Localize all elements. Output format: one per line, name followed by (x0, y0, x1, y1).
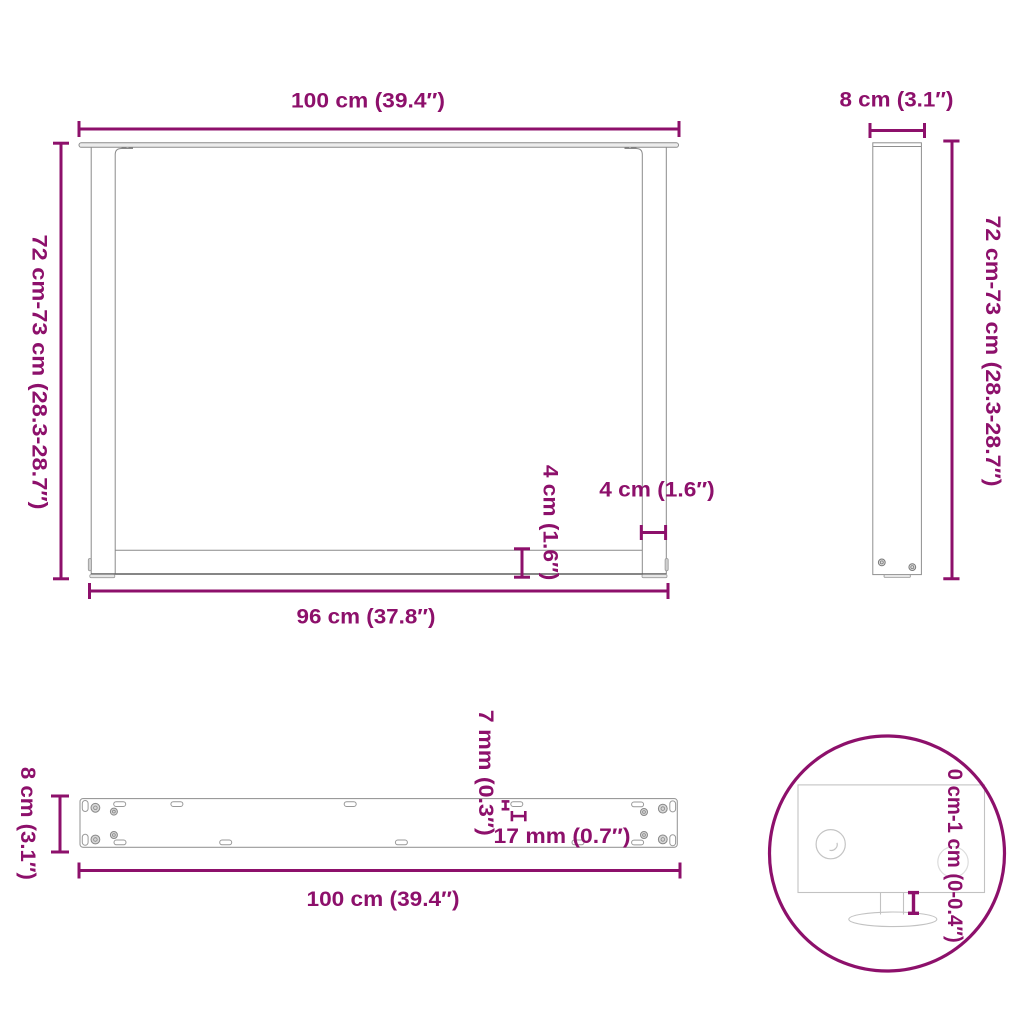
svg-text:72 cm-73 cm (28.3-28.7″): 72 cm-73 cm (28.3-28.7″) (981, 216, 1004, 487)
svg-text:96 cm (37.8″): 96 cm (37.8″) (297, 605, 436, 628)
svg-text:100 cm (39.4″): 100 cm (39.4″) (307, 888, 460, 911)
svg-text:100 cm (39.4″): 100 cm (39.4″) (291, 90, 445, 113)
svg-text:0 cm-1 cm (0-0.4″): 0 cm-1 cm (0-0.4″) (943, 769, 966, 943)
svg-text:72 cm-73 cm (28.3-28.7″): 72 cm-73 cm (28.3-28.7″) (28, 235, 51, 510)
svg-text:8 cm (3.1″): 8 cm (3.1″) (840, 88, 954, 111)
svg-text:4 cm (1.6″): 4 cm (1.6″) (539, 465, 562, 581)
svg-text:7 mm (0.3″): 7 mm (0.3″) (474, 710, 497, 836)
svg-text:17 mm (0.7″): 17 mm (0.7″) (494, 825, 631, 848)
svg-text:8 cm (3.1″): 8 cm (3.1″) (16, 767, 39, 880)
svg-text:4 cm (1.6″): 4 cm (1.6″) (599, 479, 715, 502)
